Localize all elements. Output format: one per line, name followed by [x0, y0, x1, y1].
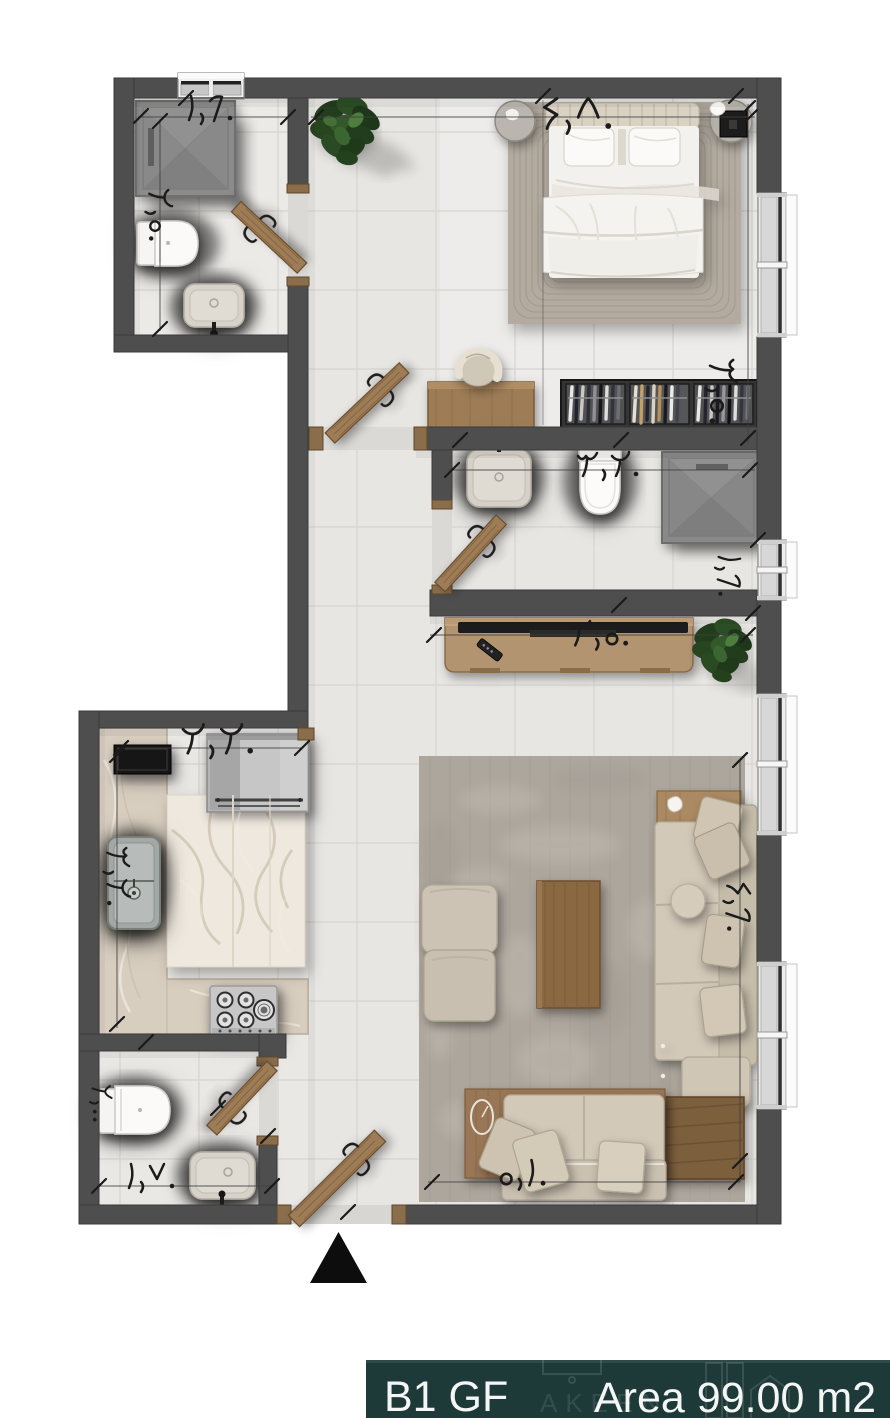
svg-text:Area 99.00 m2: Area 99.00 m2 [594, 1374, 876, 1418]
svg-text:B1 GF: B1 GF [384, 1373, 508, 1418]
